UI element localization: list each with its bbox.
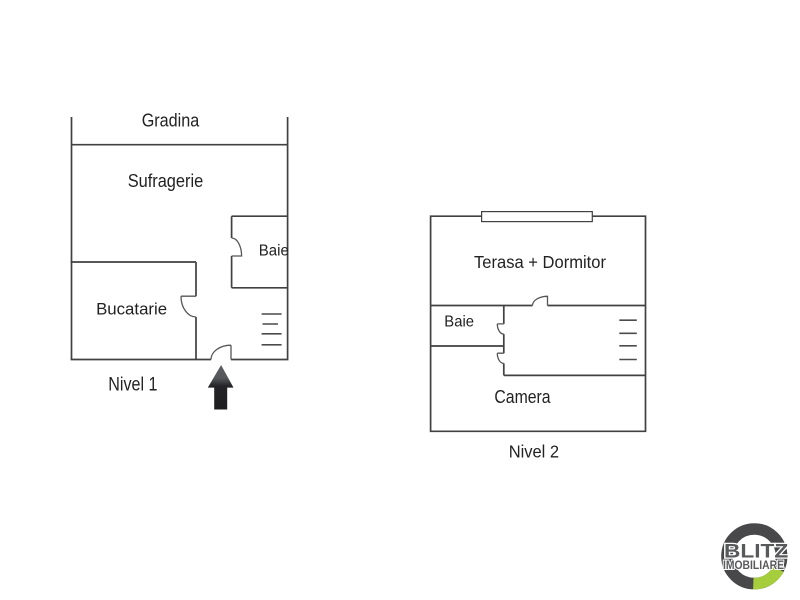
svg-text:Terasa + Dormitor: Terasa + Dormitor	[474, 252, 606, 272]
svg-text:IMOBILIARE: IMOBILIARE	[723, 560, 784, 572]
svg-text:Baie: Baie	[444, 314, 474, 331]
svg-text:Gradina: Gradina	[142, 110, 200, 130]
svg-text:Sufragerie: Sufragerie	[128, 170, 204, 191]
svg-text:Nivel 1: Nivel 1	[108, 375, 157, 396]
svg-text:Nivel 2: Nivel 2	[509, 442, 559, 462]
svg-text:Baie: Baie	[259, 242, 289, 259]
svg-text:Camera: Camera	[494, 387, 551, 408]
svg-text:Bucatarie: Bucatarie	[96, 300, 167, 319]
